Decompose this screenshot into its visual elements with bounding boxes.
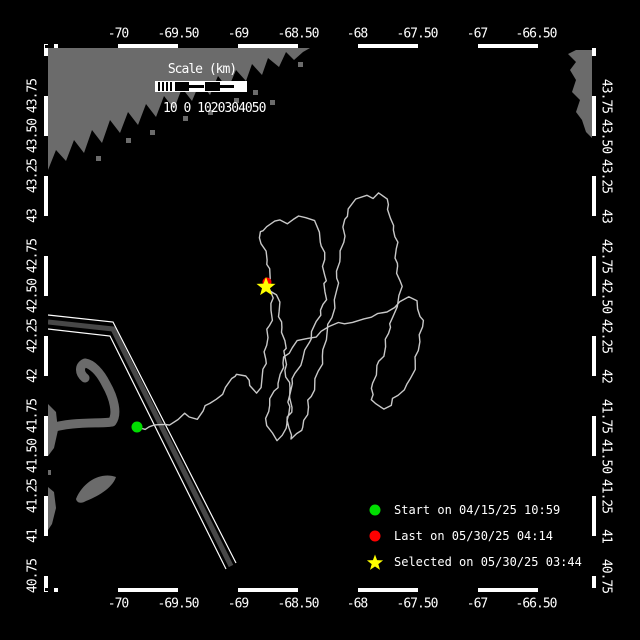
lat-tick-label-left: 43.25	[26, 159, 41, 193]
islet-land	[96, 156, 101, 161]
glider-track	[137, 193, 423, 441]
last-dot-glyph	[366, 527, 384, 545]
selected-star-icon	[366, 553, 384, 571]
lat-tick-label-right: 42.50	[599, 279, 614, 313]
lat-tick-label-left: 41.50	[26, 439, 41, 473]
selected-star-glyph	[366, 553, 384, 571]
lat-tick-label-left: 41.75	[26, 399, 41, 433]
island-land	[76, 476, 116, 503]
lon-tick-label-bottom: -68	[347, 597, 367, 612]
lon-tick-label-top: -69	[228, 27, 248, 42]
star-shape	[367, 555, 383, 570]
start-dot-glyph	[366, 501, 384, 519]
lon-tick-label-top: -69.50	[158, 27, 199, 42]
legend-label: Start on 04/15/25 10:59	[394, 503, 560, 517]
lon-tick-label-top: -68.50	[278, 27, 319, 42]
scale-bar-title: Scale (km)	[150, 62, 254, 77]
lon-tick-label-top: -67	[467, 27, 487, 42]
scale-bar-segment	[174, 82, 190, 91]
lat-tick-label-left: 40.75	[26, 559, 41, 593]
islet-land	[126, 138, 131, 143]
islet-land	[270, 100, 275, 105]
lat-tick-label-right: 41.75	[599, 399, 614, 433]
islet-land	[183, 116, 188, 121]
lat-tick-label-right: 42	[599, 369, 614, 383]
dot-shape	[370, 531, 381, 542]
scale-bar-segment	[189, 82, 204, 91]
legend-row: Selected on 05/30/25 03:44	[366, 549, 582, 575]
lat-tick-label-right: 41.25	[599, 479, 614, 513]
coastline-land	[48, 487, 56, 530]
coastline-land	[568, 50, 592, 138]
lon-tick-label-top: -68	[347, 27, 367, 42]
shipping-lane-edge	[48, 315, 236, 563]
tracking-map-window: { "colors": { "background": "#000000", "…	[0, 0, 640, 640]
lat-tick-label-left: 42.25	[26, 319, 41, 353]
shipping-lane-core	[48, 322, 231, 566]
lat-tick-label-right: 42.75	[599, 239, 614, 273]
lat-tick-label-left: 43.50	[26, 119, 41, 153]
lat-tick-label-left: 41	[26, 529, 41, 543]
lon-tick-label-top: -70	[108, 27, 128, 42]
lat-tick-label-right: 42.25	[599, 319, 614, 353]
lat-tick-label-right: 41.50	[599, 439, 614, 473]
lat-tick-label-left: 42.75	[26, 239, 41, 273]
islet-land	[48, 470, 51, 475]
lat-tick-label-left: 42	[26, 369, 41, 383]
islet-land	[298, 62, 303, 67]
lon-tick-label-bottom: -69	[228, 597, 248, 612]
lon-tick-label-bottom: -70	[108, 597, 128, 612]
scale-bar-segment	[234, 82, 246, 91]
lat-tick-label-right: 40.75	[599, 559, 614, 593]
legend-label: Selected on 05/30/25 03:44	[394, 555, 582, 569]
lat-tick-label-right: 43.25	[599, 159, 614, 193]
legend-row: Start on 04/15/25 10:59	[366, 497, 582, 523]
scale-bar-segment	[204, 82, 220, 91]
scale-bar-graphic	[155, 81, 247, 92]
scale-bar-hatch-segment	[156, 82, 174, 91]
legend-label: Last on 05/30/25 04:14	[394, 529, 553, 543]
islet-land	[150, 130, 155, 135]
map-frame-zebra-right	[592, 48, 596, 588]
lat-tick-label-right: 43	[599, 209, 614, 223]
map-frame-zebra-bottom	[48, 588, 592, 592]
track-legend: Start on 04/15/25 10:59Last on 05/30/25 …	[366, 497, 582, 575]
lon-tick-label-bottom: -66.50	[516, 597, 557, 612]
lat-tick-label-right: 43.50	[599, 119, 614, 153]
lat-tick-label-left: 41.25	[26, 479, 41, 513]
lat-tick-label-left: 43	[26, 209, 41, 223]
lat-tick-label-right: 43.75	[599, 79, 614, 113]
last-dot-icon	[366, 527, 384, 545]
scale-bar: Scale (km) 10 0 1020304050	[150, 62, 265, 116]
lon-tick-label-bottom: -67.50	[397, 597, 438, 612]
lat-tick-label-right: 41	[599, 529, 614, 543]
lon-tick-label-bottom: -68.50	[278, 597, 319, 612]
cape-cod-land	[48, 363, 115, 429]
lat-tick-label-left: 43.75	[26, 79, 41, 113]
lat-tick-label-left: 42.50	[26, 279, 41, 313]
lon-tick-label-top: -67.50	[397, 27, 438, 42]
start-dot-icon	[366, 501, 384, 519]
scale-bar-segment	[220, 82, 235, 91]
lon-tick-label-bottom: -69.50	[158, 597, 199, 612]
lon-tick-label-top: -66.50	[516, 27, 557, 42]
scale-bar-tick-labels: 10 0 1020304050	[163, 101, 265, 116]
legend-row: Last on 05/30/25 04:14	[366, 523, 582, 549]
start-position-marker[interactable]	[132, 422, 143, 433]
lon-tick-label-bottom: -67	[467, 597, 487, 612]
dot-shape	[370, 505, 381, 516]
shipping-lane-edge	[48, 329, 226, 569]
